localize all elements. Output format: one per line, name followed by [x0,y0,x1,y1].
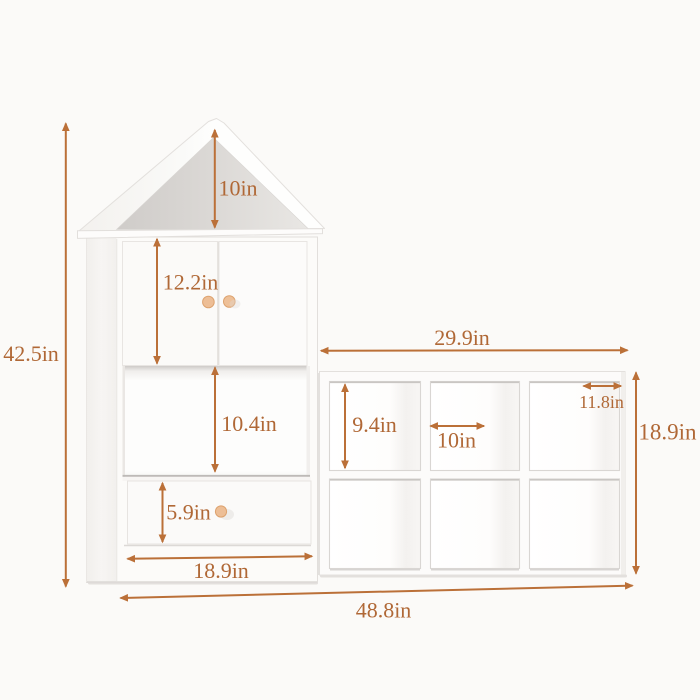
svg-text:10.4in: 10.4in [221,411,277,436]
svg-text:42.5in: 42.5in [3,341,59,366]
svg-text:10in: 10in [437,428,476,453]
svg-text:48.8in: 48.8in [356,598,412,623]
svg-text:18.9in: 18.9in [638,420,697,445]
svg-text:29.9in: 29.9in [434,325,490,350]
svg-text:12.2in: 12.2in [163,270,219,295]
svg-text:18.9in: 18.9in [193,558,249,583]
svg-text:9.4in: 9.4in [352,412,397,437]
svg-text:5.9in: 5.9in [166,500,211,525]
svg-text:10in: 10in [218,176,257,201]
svg-text:11.8in: 11.8in [579,392,624,412]
